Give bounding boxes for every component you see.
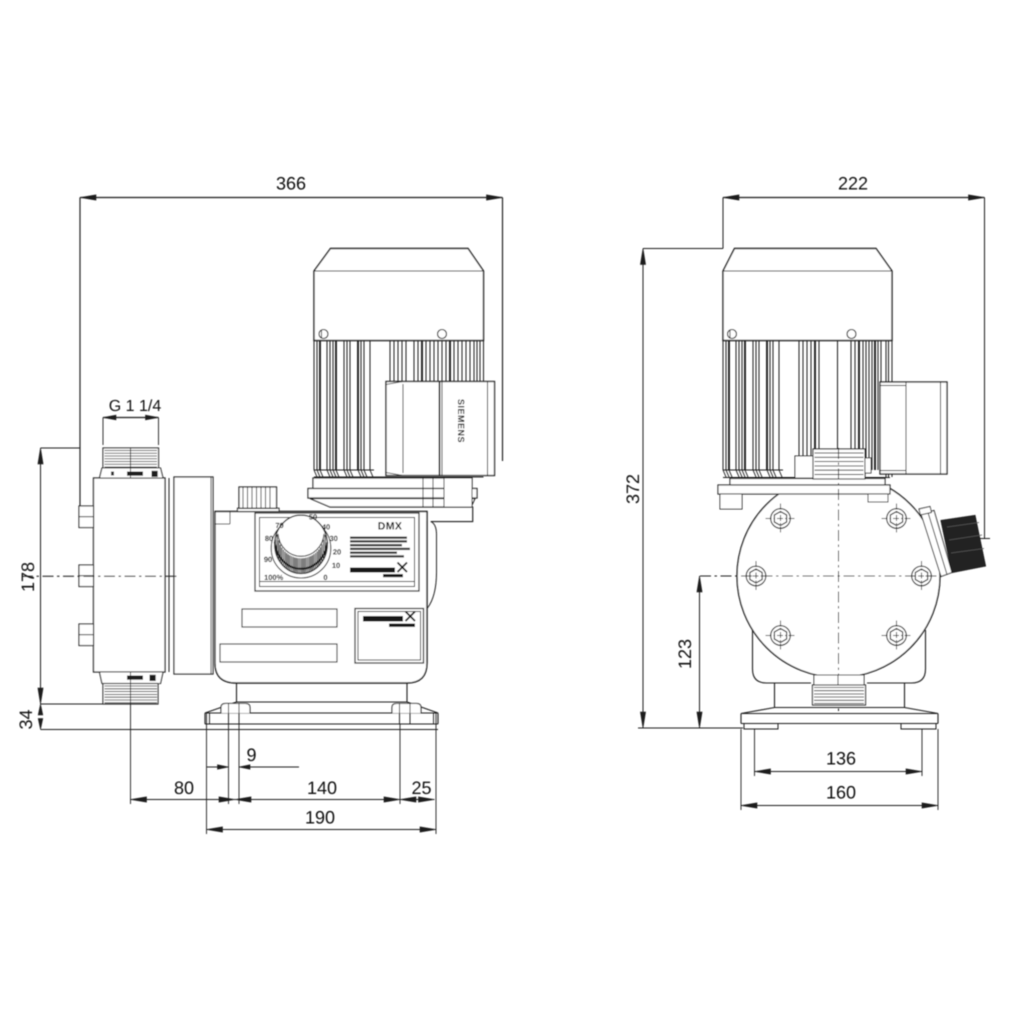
svg-text:136: 136 xyxy=(826,749,856,769)
svg-text:160: 160 xyxy=(826,783,856,803)
svg-text:34: 34 xyxy=(16,709,36,729)
svg-text:50: 50 xyxy=(309,513,317,522)
svg-text:372: 372 xyxy=(623,474,643,504)
svg-text:80: 80 xyxy=(174,778,194,798)
svg-text:G 1 1/4: G 1 1/4 xyxy=(109,398,162,415)
svg-text:366: 366 xyxy=(276,174,306,194)
svg-text:30: 30 xyxy=(330,534,338,543)
svg-text:0: 0 xyxy=(323,573,327,582)
svg-text:10: 10 xyxy=(332,561,340,570)
svg-text:190: 190 xyxy=(305,808,335,828)
svg-text:70: 70 xyxy=(275,521,283,530)
svg-text:123: 123 xyxy=(675,639,695,669)
svg-text:100%: 100% xyxy=(264,573,284,582)
svg-text:140: 140 xyxy=(307,778,337,798)
svg-text:222: 222 xyxy=(838,174,868,194)
svg-text:178: 178 xyxy=(18,562,38,592)
svg-text:9: 9 xyxy=(246,745,256,765)
svg-text:40: 40 xyxy=(322,523,330,532)
svg-text:SIEMENS: SIEMENS xyxy=(456,399,466,443)
svg-text:20: 20 xyxy=(333,548,341,557)
svg-text:90: 90 xyxy=(264,555,272,564)
svg-text:80: 80 xyxy=(265,534,273,543)
svg-text:DMX: DMX xyxy=(378,521,403,533)
svg-text:25: 25 xyxy=(411,778,431,798)
